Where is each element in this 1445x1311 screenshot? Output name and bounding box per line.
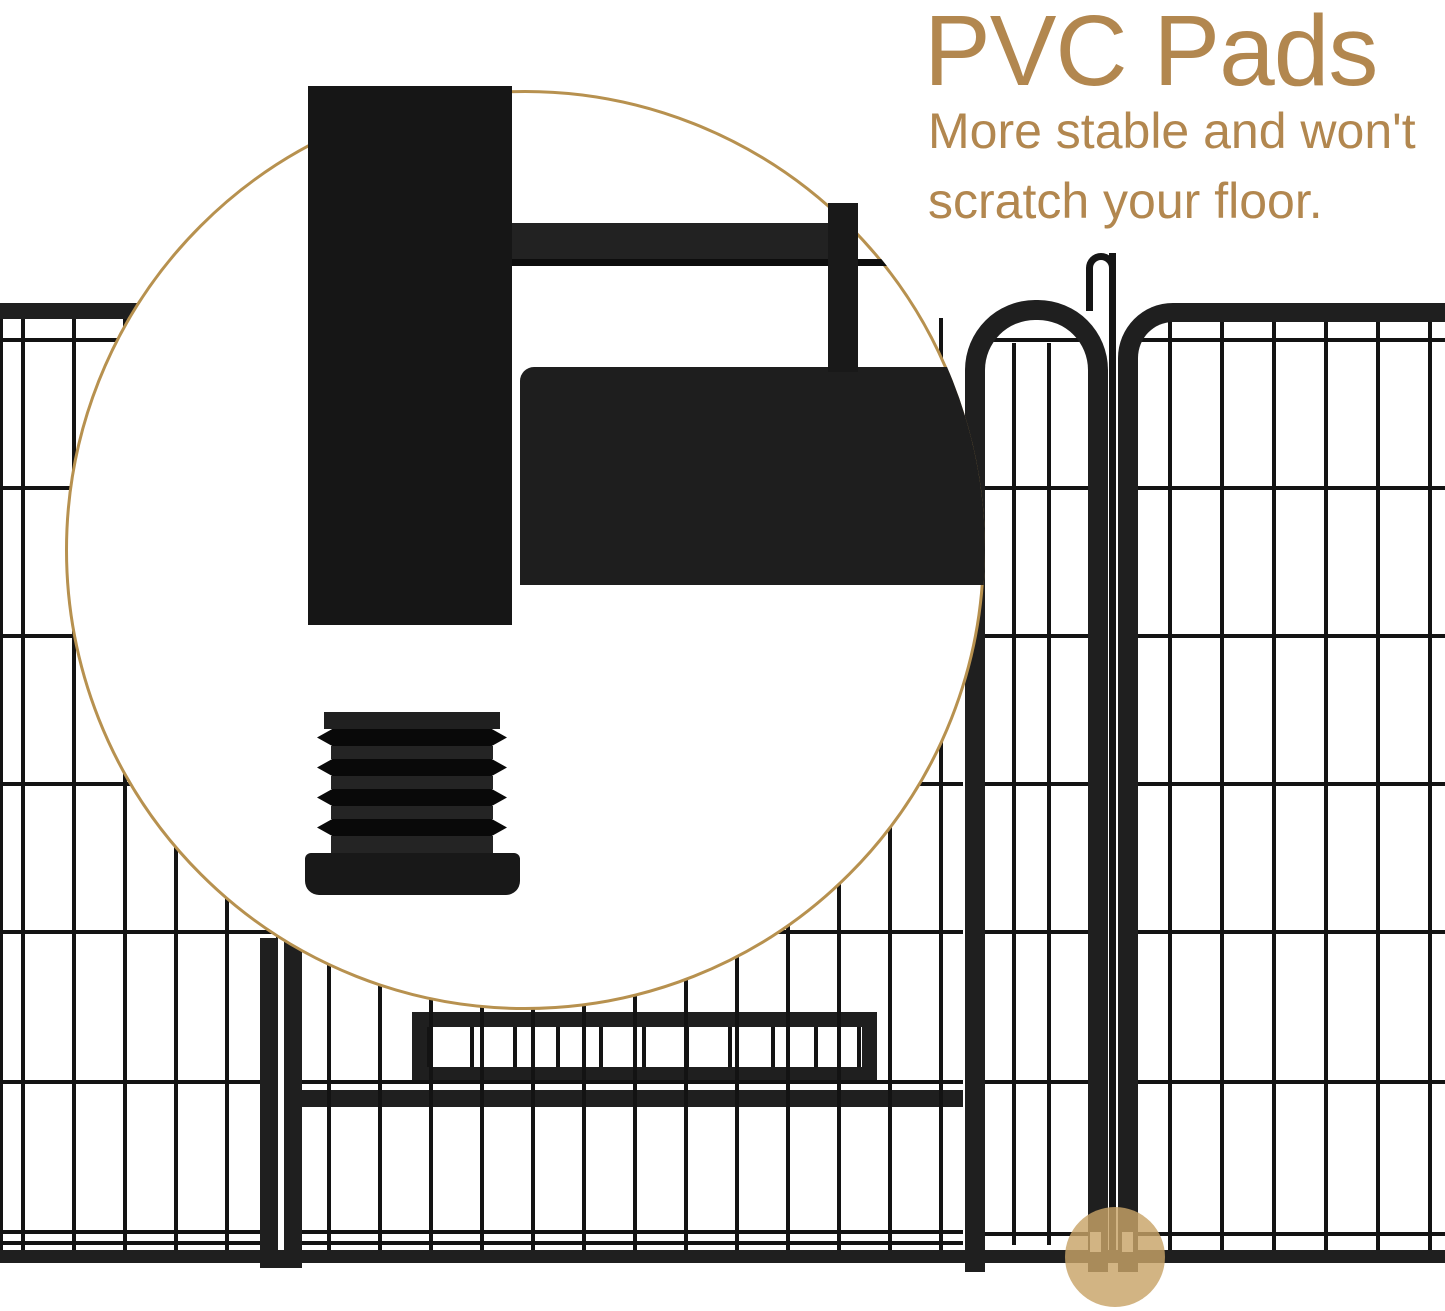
panel-foot [965,1263,985,1272]
plug-neck [331,806,493,819]
magnified-bottom-rail [520,367,985,585]
plug-neck [331,746,493,759]
callout-description-line: More stable and won't [928,96,1416,166]
mesh-horizontal-wire [0,1241,963,1245]
gate-latch-rod [1109,253,1116,1250]
plug-rib [317,789,507,806]
plug-rib [317,759,507,776]
plug-base-pad [305,853,520,895]
plug-cap [324,712,500,729]
right-panel-frame [1118,303,1445,1263]
magnified-wire-stub [828,203,858,372]
plug-rib [317,819,507,836]
hinge-gap [278,938,284,1250]
callout-description: More stable and won't scratch your floor… [928,96,1445,166]
callout-description-line: scratch your floor. [928,166,1323,236]
plug-rib [317,729,507,746]
pvc-pad-plug [305,712,520,895]
gate-door-frame [965,300,1108,1263]
magnified-frame-post [308,86,512,625]
plug-neck [331,836,493,853]
pad-location-highlight-circle [1065,1207,1165,1307]
product-feature-image: PVC Pads More stable and won't scratch y… [0,0,1445,1311]
callout-title: PVC Pads [924,0,1444,109]
plug-neck [331,776,493,789]
mesh-horizontal-wire [0,1080,963,1084]
mesh-horizontal-wire [0,1230,963,1234]
